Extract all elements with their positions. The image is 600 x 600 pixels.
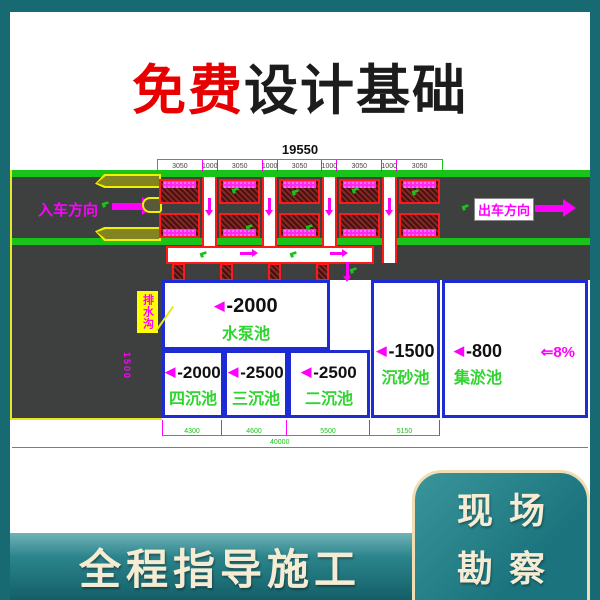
pool-level: ◀-800	[423, 341, 533, 362]
dim-seg: 1000	[382, 160, 397, 172]
wash-grate	[339, 213, 380, 238]
headline-highlight: 免费	[132, 46, 244, 125]
flow-arrow-down-icon	[208, 198, 211, 210]
grate-strip	[403, 229, 436, 236]
wash-grate	[339, 179, 380, 204]
wash-module	[397, 179, 442, 238]
traffic-island-fill	[97, 176, 159, 186]
road-edge-line-bottom	[10, 238, 590, 245]
wash-grate	[399, 179, 440, 204]
dim-seg: 3050	[278, 160, 323, 172]
grate-strip	[223, 229, 256, 236]
dim-seg: 3050	[218, 160, 263, 172]
bottom-banner-title: 全程指导施工	[10, 533, 430, 600]
pool-level-value: -2000	[226, 295, 277, 317]
pool-level-value: -2000	[177, 363, 220, 382]
flow-arrow-down-icon	[328, 198, 331, 210]
flow-arrow-right-icon	[240, 252, 252, 255]
corner-badge-line1: 现场	[441, 482, 561, 534]
flow-arrow-right-icon	[330, 252, 342, 255]
exit-direction-label: 出车方向	[478, 200, 530, 219]
traffic-island-fill	[97, 229, 159, 239]
trench-stub	[220, 263, 233, 281]
level-marker-icon: ◀	[454, 343, 464, 358]
headline: 免费设计基础	[10, 40, 590, 130]
wash-grate	[219, 213, 260, 238]
level-marker-icon: ◀	[165, 364, 175, 379]
dim-total-bottom: 40000	[270, 439, 289, 446]
grate-strip	[343, 181, 376, 188]
pool-label: ◀-2000 水泵池	[165, 295, 327, 344]
pool-name: 二沉池	[291, 385, 367, 409]
trench-stub	[268, 263, 281, 281]
pool-name: 三沉池	[227, 385, 285, 409]
pool-level: ◀-2000	[165, 363, 221, 383]
pool-name: 四沉池	[165, 385, 221, 409]
dim-seg: 3050	[397, 160, 442, 172]
wash-grate	[159, 213, 200, 238]
apron-left-edge	[10, 170, 12, 420]
pool-3rd-sed: ◀-2500 三沉池	[224, 350, 288, 418]
dim-total-top: 19550	[157, 142, 443, 157]
pool-level: ◀-2500	[291, 363, 367, 383]
pool-level: ◀-2500	[227, 363, 285, 383]
pool-label: ◀-2500 二沉池	[291, 363, 367, 409]
grate-strip	[403, 181, 436, 188]
wash-module	[157, 179, 202, 238]
wash-module	[337, 179, 382, 238]
callout-label: 排水沟	[137, 291, 158, 333]
pool-2nd-sed: ◀-2500 二沉池	[288, 350, 370, 418]
exit-arrow-icon	[535, 205, 563, 212]
wash-grate	[399, 213, 440, 238]
dim-seg: 5500	[287, 420, 370, 435]
trench-stub	[316, 263, 329, 281]
dim-seg: 4300	[162, 420, 222, 435]
pool-label: ◀-800 集淤池	[423, 341, 533, 388]
wash-module	[217, 179, 262, 238]
grate-strip	[343, 229, 376, 236]
pool-label: ◀-2500 三沉池	[227, 363, 285, 409]
wash-grate	[279, 179, 320, 204]
dim-seg: 1000	[322, 160, 337, 172]
level-marker-icon: ◀	[228, 364, 238, 379]
pool-sludge: ◀-800 集淤池 ⇐8%	[442, 280, 588, 418]
grate-strip	[283, 229, 316, 236]
pool-name: 水泵池	[165, 320, 327, 344]
entry-arrow-icon	[112, 203, 142, 210]
apron-bottom-edge	[10, 418, 162, 420]
promo-page: 免费设计基础 19550 3050 1000 3050 1000 3050 10…	[0, 0, 600, 600]
drain-channel	[382, 177, 397, 263]
pool-level-value: -2500	[240, 363, 283, 382]
level-marker-icon: ◀	[301, 364, 311, 379]
grate-strip	[163, 181, 196, 188]
grate-strip	[283, 181, 316, 188]
dim-seg: 1000	[203, 160, 218, 172]
pool-label: ◀-2000 四沉池	[165, 363, 221, 409]
wash-grate	[279, 213, 320, 238]
corner-badge: 现场 勘察	[412, 470, 590, 600]
flow-arrow-down-icon	[268, 198, 271, 210]
level-marker-icon: ◀	[214, 298, 224, 313]
traffic-island-lower	[95, 227, 161, 241]
dim-seg: 5150	[370, 420, 440, 435]
exit-direction-box: 出车方向	[474, 198, 534, 221]
trench-stub	[172, 263, 185, 281]
dim-chain-bottom: 4300 4600 5500 5150	[162, 420, 440, 436]
dim-seg: 1000	[263, 160, 278, 172]
pool-pump: ◀-2000 水泵池	[162, 280, 330, 350]
slope-label: ⇐8%	[541, 343, 575, 361]
wash-grate	[159, 179, 200, 204]
pool-level-value: -800	[466, 341, 502, 361]
level-marker-icon: ◀	[376, 343, 386, 358]
pool-name: 集淤池	[423, 364, 533, 388]
dim-chain-top: 3050 1000 3050 1000 3050 1000 3050 1000 …	[157, 159, 443, 173]
pool-level-value: -2500	[313, 363, 356, 382]
dim-seg: 3050	[158, 160, 203, 172]
wash-grate	[219, 179, 260, 204]
corner-badge-line2: 勘察	[441, 540, 561, 592]
wash-module	[277, 179, 322, 238]
pool-4th-sed: ◀-2000 四沉池	[162, 350, 224, 418]
pool-level: ◀-2000	[165, 295, 327, 318]
grate-strip	[163, 229, 196, 236]
callout-dimension: 1500	[122, 352, 132, 380]
flow-arrow-down-icon	[346, 262, 349, 276]
traffic-island-upper	[95, 174, 161, 188]
dim-total-line	[12, 447, 588, 448]
flow-arrow-down-icon	[388, 198, 391, 210]
entry-direction-label: 入车方向	[38, 199, 98, 220]
headline-rest: 设计基础	[244, 46, 468, 125]
grate-strip	[223, 181, 256, 188]
dim-seg: 3050	[337, 160, 382, 172]
dim-seg: 4600	[222, 420, 287, 435]
